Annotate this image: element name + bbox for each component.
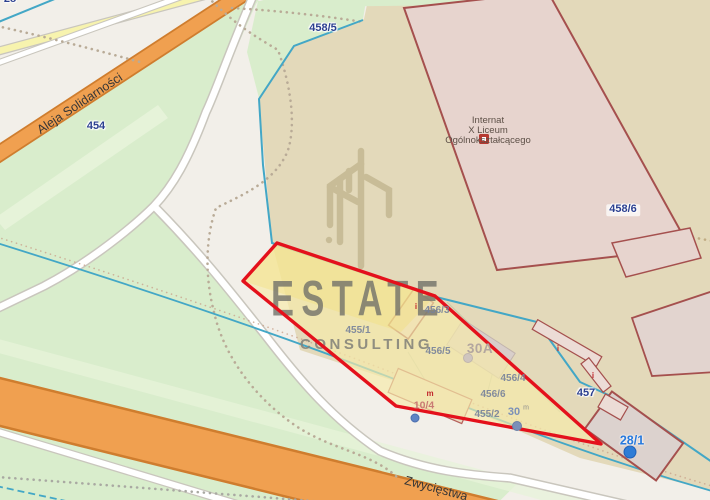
address-marker-28-1 — [624, 446, 637, 459]
parcel-label-456-3: 456/3 — [424, 306, 449, 317]
street-label-aleja-solidarnosci: Aleja Solidarności — [35, 71, 125, 137]
building-mark-m: m — [426, 390, 433, 398]
building-marker-30a — [463, 353, 473, 363]
building-mark-i: i — [592, 372, 594, 380]
building-mark-i: i — [557, 345, 559, 353]
parcel-label-456-5: 456/5 — [425, 347, 450, 358]
parcel-label-456-4: 456/4 — [500, 374, 525, 385]
parcel-label-455-2: 455/2 — [474, 410, 499, 421]
parcel-label-458-5: 458/5 — [309, 23, 337, 35]
map-labels-layer: 458/5454458/64572828/13030A10/4455/1456/… — [0, 0, 710, 500]
parcel-label-458-6: 458/6 — [606, 204, 640, 216]
parcel-label-456-6: 456/6 — [480, 390, 505, 401]
map-canvas[interactable]: ESTATE CONSULTING 458/5454458/64572828/1… — [0, 0, 710, 500]
address-label-30: 30 — [508, 407, 520, 419]
parcel-label-28-partial: 28 — [4, 0, 16, 6]
parcel-label-457: 457 — [577, 388, 595, 400]
building-mark-i: i — [415, 303, 417, 311]
school-icon — [479, 134, 489, 144]
building-mark-m: m — [523, 404, 529, 411]
address-marker-10-4 — [411, 414, 420, 423]
parcel-label-455-1: 455/1 — [345, 326, 370, 337]
address-label-10-4: 10/4 — [414, 400, 434, 411]
parcel-label-454: 454 — [87, 121, 105, 133]
street-label-zwyciestwa: Zwycięstwa — [403, 474, 469, 500]
address-marker-30 — [512, 421, 522, 431]
